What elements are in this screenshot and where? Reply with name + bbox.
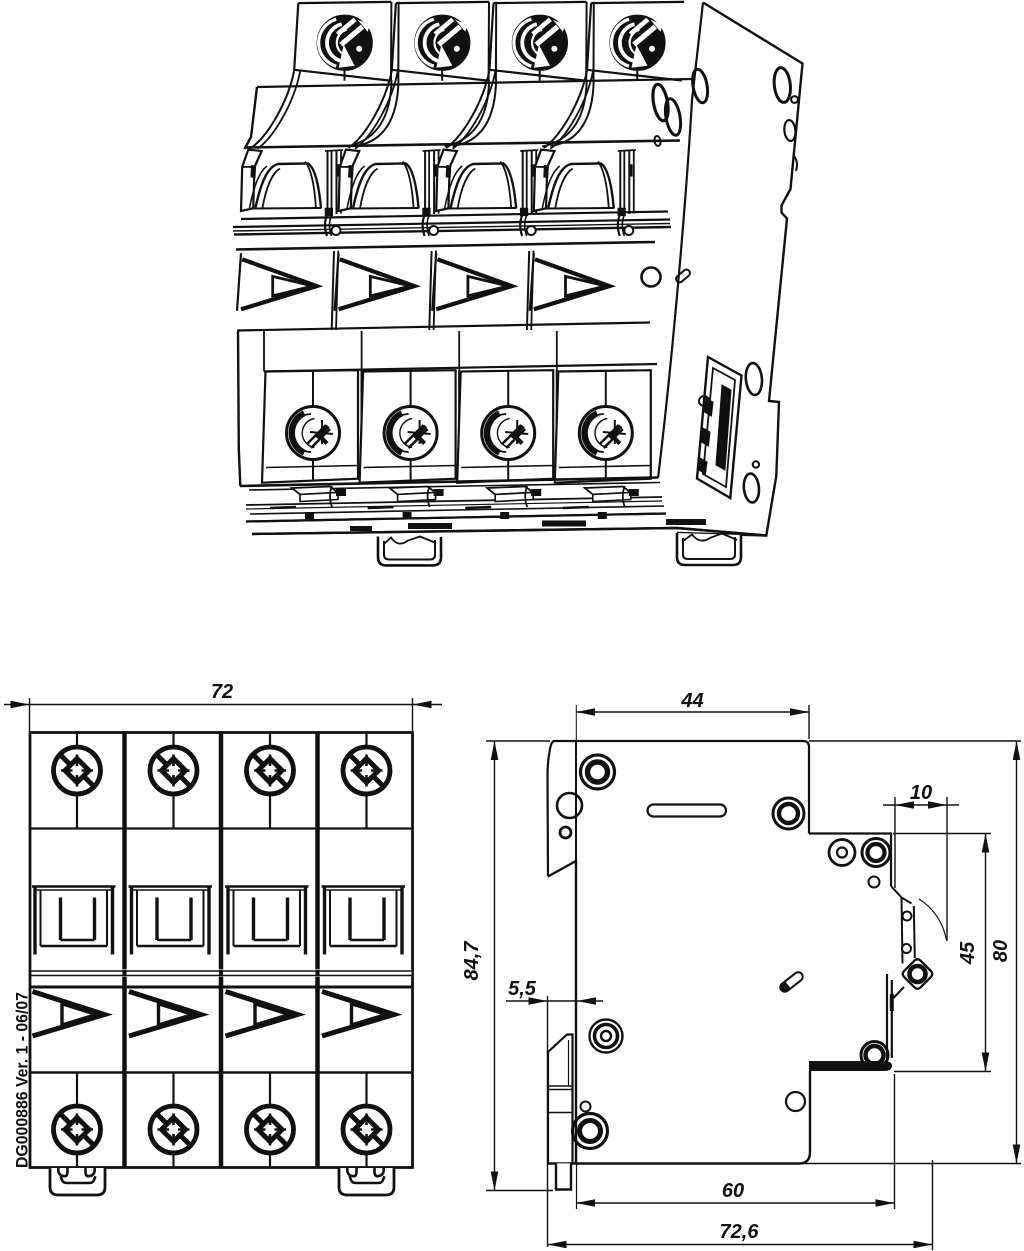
svg-text:80: 80 bbox=[990, 940, 1012, 962]
svg-text:5,5: 5,5 bbox=[508, 978, 537, 1000]
svg-text:DG000886 Ver. 1 - 06/07: DG000886 Ver. 1 - 06/07 bbox=[13, 992, 32, 1168]
svg-text:60: 60 bbox=[722, 1180, 744, 1202]
svg-text:10: 10 bbox=[910, 782, 932, 804]
svg-text:84,7: 84,7 bbox=[461, 941, 483, 981]
svg-text:72: 72 bbox=[211, 681, 233, 703]
svg-text:72,6: 72,6 bbox=[720, 1221, 760, 1243]
svg-text:45: 45 bbox=[957, 941, 979, 965]
svg-text:44: 44 bbox=[680, 690, 703, 712]
